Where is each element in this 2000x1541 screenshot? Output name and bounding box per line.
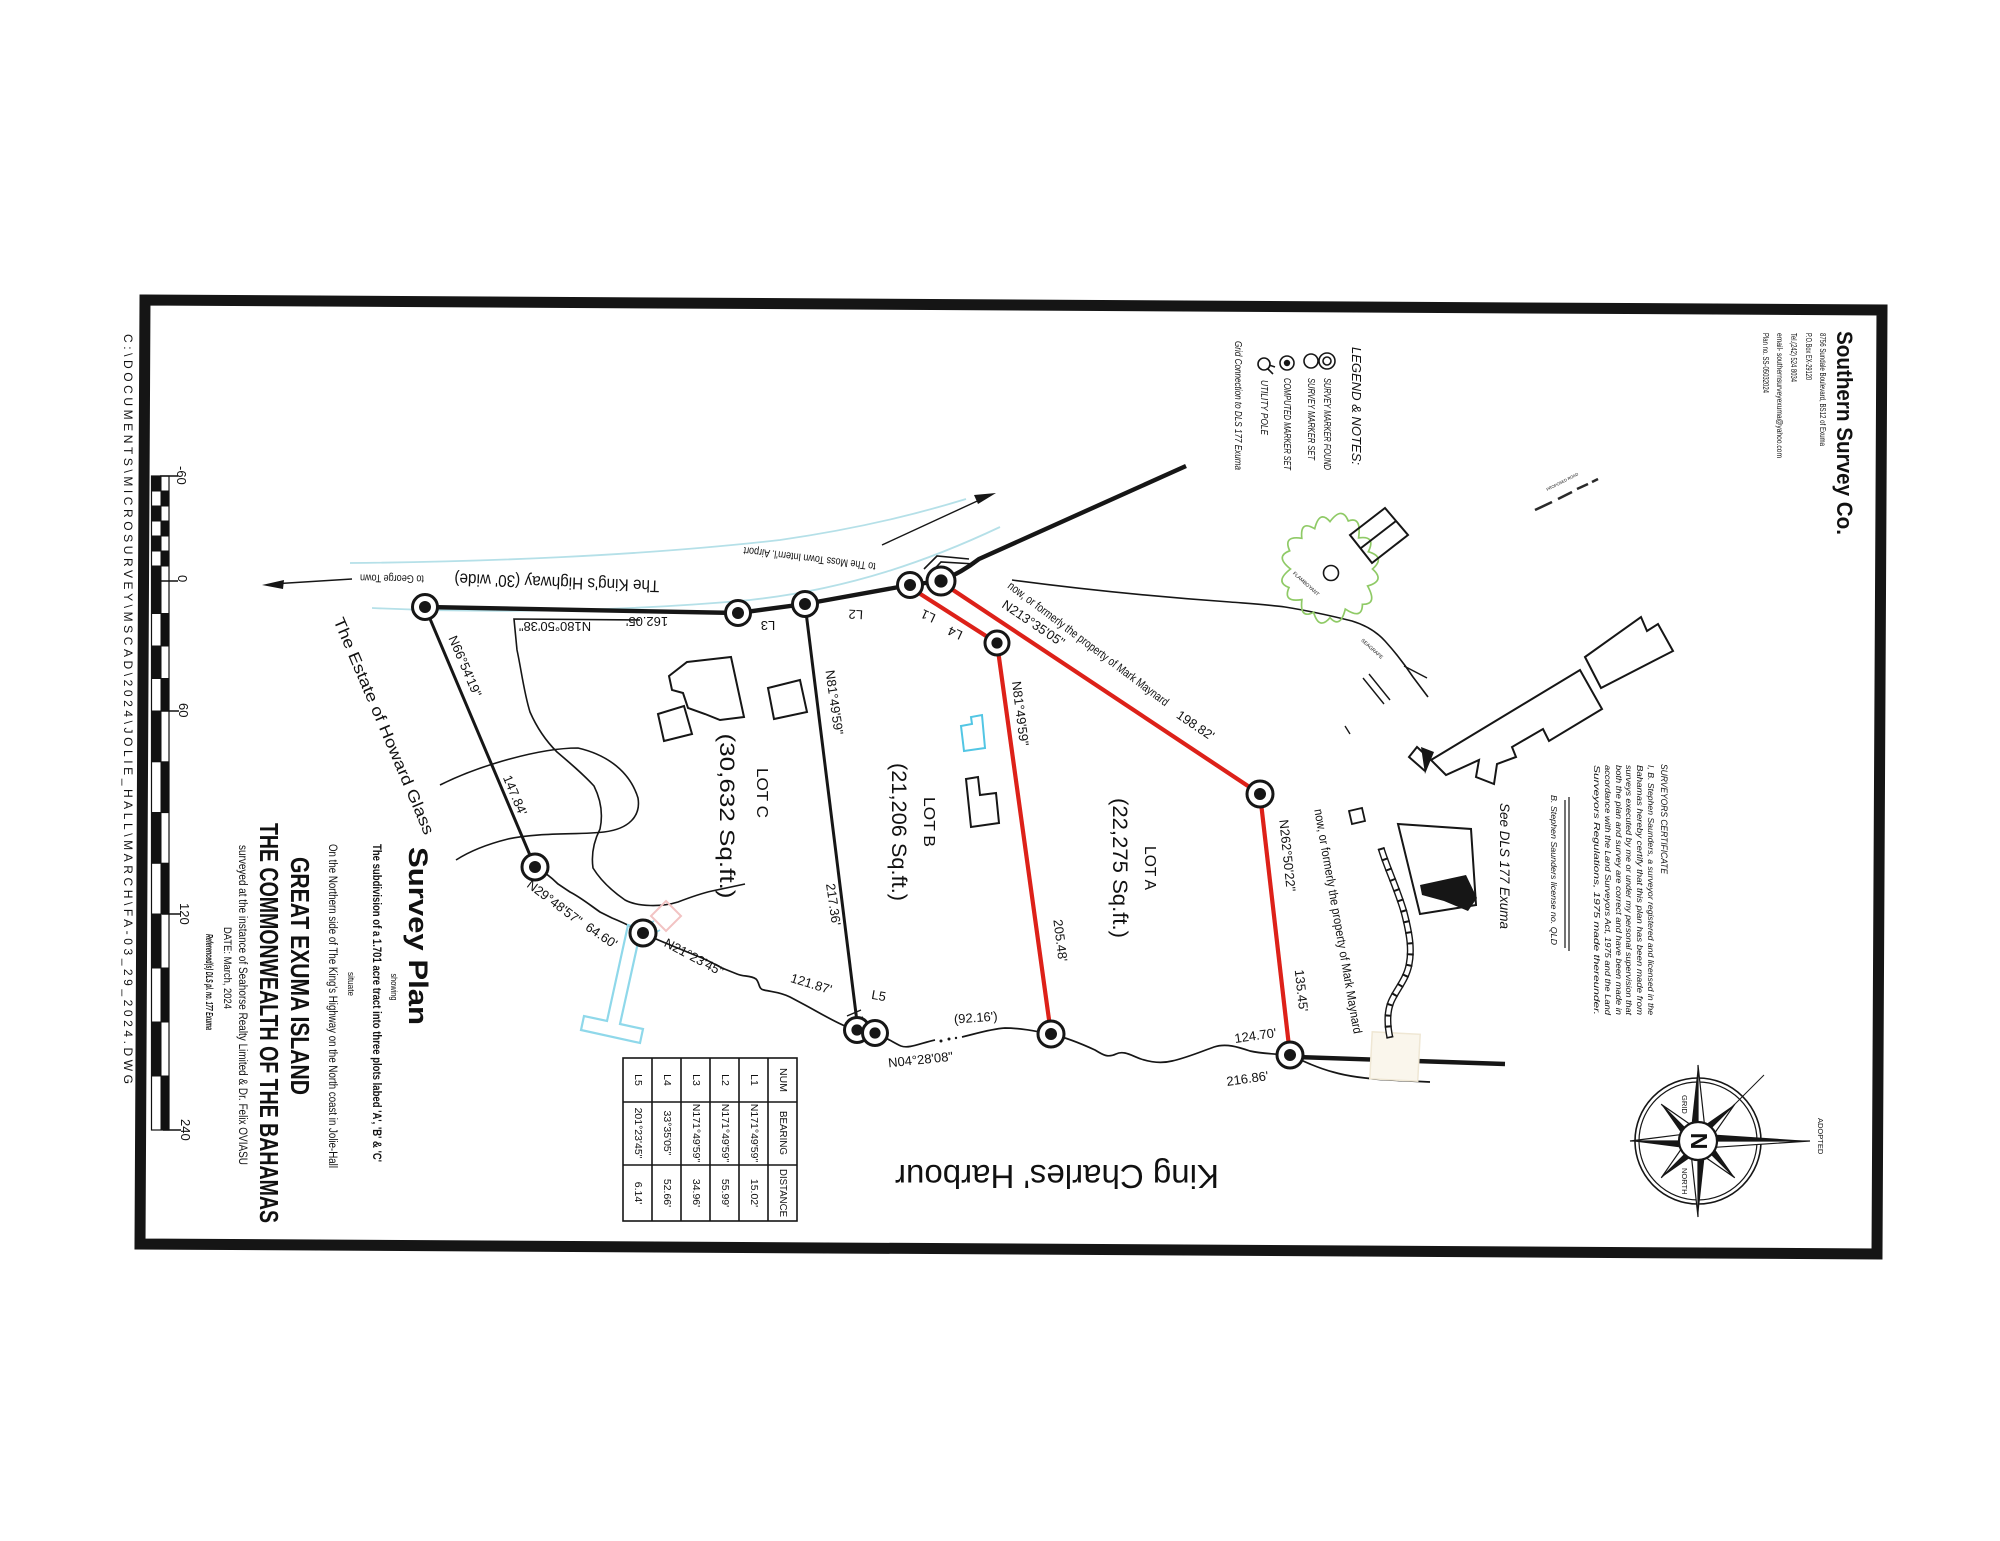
svg-text:L1: L1 <box>918 606 937 626</box>
svg-text:P.O.Box EX-29120: P.O.Box EX-29120 <box>1804 333 1814 380</box>
svg-text:Grid Connection to DLS 177 Ex: Grid Connection to DLS 177 Exuma <box>1232 341 1243 470</box>
svg-text:L1: L1 <box>748 1074 760 1086</box>
svg-text:now, or formerly the property: now, or formerly the property of Mark Ma… <box>1311 808 1364 1035</box>
svg-text:Referenced(s) DLS pl. no. 177: Referenced(s) DLS pl. no. 177 Exuma <box>203 934 214 1030</box>
svg-text:surveyed at the instance of Se: surveyed at the instance of Seahorse Rea… <box>236 845 248 1165</box>
svg-text:The Estate of Howard Glass: The Estate of Howard Glass <box>330 615 437 837</box>
svg-text:NUM: NUM <box>777 1068 789 1092</box>
svg-text:FLAMBOYANT: FLAMBOYANT <box>1291 571 1320 598</box>
svg-text:(22,275 Sq.ft.): (22,275 Sq.ft.) <box>1108 798 1131 938</box>
svg-text:SEAGRAPE: SEAGRAPE <box>1359 638 1384 661</box>
svg-text:N: N <box>1686 1133 1712 1150</box>
svg-text:201°23'45": 201°23'45" <box>632 1108 644 1159</box>
svg-text:LEGEND & NOTES:: LEGEND & NOTES: <box>1349 347 1364 465</box>
svg-text:SURVEY MARKER FOUND: SURVEY MARKER FOUND <box>1321 378 1332 470</box>
svg-text:See DLS 177 Exuma: See DLS 177 Exuma <box>1497 803 1513 929</box>
svg-text:205.48': 205.48' <box>1050 919 1070 963</box>
svg-text:64.60': 64.60' <box>583 919 620 951</box>
svg-text:showing: showing <box>388 974 399 1001</box>
svg-text:N262°50'22": N262°50'22" <box>1276 819 1299 893</box>
svg-text:N81°49'59": N81°49'59" <box>823 669 847 736</box>
svg-text:15.02': 15.02' <box>748 1179 760 1207</box>
svg-text:34.96': 34.96' <box>690 1179 702 1207</box>
svg-text:120: 120 <box>177 903 192 925</box>
svg-text:(30,632 Sq.ft.): (30,632 Sq.ft.) <box>715 734 738 899</box>
svg-text:N04°28'08": N04°28'08" <box>887 1049 954 1071</box>
svg-text:Southern Survey Co.: Southern Survey Co. <box>1832 331 1857 535</box>
svg-text:L3: L3 <box>761 618 775 633</box>
svg-text:60: 60 <box>176 703 191 717</box>
svg-text:121.87': 121.87' <box>789 970 834 997</box>
svg-text:L2: L2 <box>719 1074 731 1086</box>
svg-text:N180°50'38": N180°50'38" <box>518 619 591 634</box>
svg-text:COMPUTED MARKER SET: COMPUTED MARKER SET <box>1281 378 1292 471</box>
svg-text:8756 Sundale Boulevard, BS12 o: 8756 Sundale Boulevard, BS12 of Exuma <box>1818 333 1828 446</box>
svg-text:162.05': 162.05' <box>626 614 668 629</box>
svg-text:DISTANCE: DISTANCE <box>777 1169 789 1217</box>
svg-text:The subdivision of a 1.701 acr: The subdivision of a 1.701 acre tract in… <box>370 844 384 1162</box>
svg-text:C:\DOCUMENTS\MICROSURVEY\MSCAD: C:\DOCUMENTS\MICROSURVEY\MSCAD\2024\JOLI… <box>121 334 135 1084</box>
svg-text:124.70': 124.70' <box>1233 1025 1277 1046</box>
svg-text:UTILITY POLE: UTILITY POLE <box>1258 380 1269 435</box>
svg-text:135.45': 135.45' <box>1292 969 1311 1013</box>
svg-text:PROPOSED ROAD: PROPOSED ROAD <box>1545 471 1579 492</box>
svg-text:Surveyors Regulations, 1975 ma: Surveyors Regulations, 1975 made thereun… <box>1592 765 1601 1015</box>
svg-text:Survey Plan: Survey Plan <box>403 847 433 1025</box>
svg-text:surveys executed by me or unde: surveys executed by me or under my perso… <box>1624 765 1633 1016</box>
svg-text:N29°48'57": N29°48'57" <box>524 877 585 928</box>
svg-text:(92.16'): (92.16') <box>953 1009 998 1027</box>
svg-text:SURVEY MARKER SET: SURVEY MARKER SET <box>1305 378 1316 461</box>
svg-text:L4: L4 <box>661 1074 673 1086</box>
svg-text:King Charles' Harbour: King Charles' Harbour <box>895 1158 1219 1195</box>
svg-text:GREAT EXUMA ISLAND: GREAT EXUMA ISLAND <box>285 857 315 1095</box>
svg-text:LOT B: LOT B <box>920 797 937 847</box>
svg-text:LOT A: LOT A <box>1141 846 1158 890</box>
svg-text:to George Town: to George Town <box>360 571 424 584</box>
svg-text:N171°49'59": N171°49'59" <box>690 1104 702 1163</box>
svg-text:52.66': 52.66' <box>661 1179 673 1207</box>
svg-text:GRID: GRID <box>1680 1095 1689 1114</box>
svg-text:N171°49'59": N171°49'59" <box>719 1104 731 1163</box>
svg-text:L2: L2 <box>848 607 863 623</box>
svg-text:to The Moss Town Intern'l. Air: to The Moss Town Intern'l. Airport <box>743 544 876 572</box>
svg-text:SURVEYORS CERTIFICATE: SURVEYORS CERTIFICATE <box>1659 764 1669 875</box>
svg-text:L4: L4 <box>945 623 964 643</box>
svg-text:situate: situate <box>345 972 356 996</box>
svg-text:LOT C: LOT C <box>753 768 770 818</box>
svg-text:N21°23'45": N21°23'45" <box>662 935 727 979</box>
svg-text:N81°49'59": N81°49'59" <box>1009 680 1032 747</box>
svg-text:I, B. Stephen Saunders, a surv: I, B. Stephen Saunders, a surveyor regis… <box>1646 765 1655 1016</box>
svg-text:L5: L5 <box>632 1074 644 1086</box>
svg-text:THE COMMONWEALTH OF THE BAHAMA: THE COMMONWEALTH OF THE BAHAMAS <box>254 823 284 1223</box>
svg-text:On the Northern side of The Ki: On the Northern side of The King's Highw… <box>326 844 338 1168</box>
svg-text:33°35'05": 33°35'05" <box>661 1111 673 1156</box>
svg-text:email- southernsurveyexuma@yah: email- southernsurveyexuma@yahoo.com <box>1775 333 1785 458</box>
svg-text:Plan no. SS-05032024: Plan no. SS-05032024 <box>1761 333 1771 393</box>
svg-text:BEARING: BEARING <box>777 1111 789 1155</box>
svg-text:L5: L5 <box>870 987 887 1004</box>
svg-text:-60: -60 <box>174 466 189 485</box>
svg-text:Bahamas hereby certify that th: Bahamas hereby certify that this plan ha… <box>1635 765 1644 1015</box>
svg-text:55.99': 55.99' <box>719 1179 731 1207</box>
svg-text:N171°49'59": N171°49'59" <box>748 1104 760 1163</box>
svg-text:B. Stephen Saunders license no: B. Stephen Saunders license no. QLD <box>1549 795 1559 945</box>
svg-text:NORTH: NORTH <box>1680 1168 1689 1195</box>
svg-text:198.82': 198.82' <box>1174 707 1217 743</box>
svg-text:216.86': 216.86' <box>1225 1068 1269 1089</box>
svg-text:L3: L3 <box>690 1074 702 1086</box>
svg-text:Tel.(242) 524 8034: Tel.(242) 524 8034 <box>1789 333 1799 382</box>
svg-text:both the plan and survey are c: both the plan and survey are correct and… <box>1614 765 1623 1016</box>
svg-text:DATE: March, 2024: DATE: March, 2024 <box>221 927 233 1009</box>
svg-text:The King's Highway (30' wide): The King's Highway (30' wide) <box>454 569 660 595</box>
svg-text:(21,206 Sq.ft.): (21,206 Sq.ft.) <box>887 763 910 901</box>
svg-text:now, or formerly the property: now, or formerly the property of Mark Ma… <box>1005 579 1172 709</box>
svg-text:ADOPTED: ADOPTED <box>1816 1118 1825 1155</box>
svg-text:accordance with the Land Surve: accordance with the Land Surveyors Act, … <box>1603 765 1612 1016</box>
svg-text:240: 240 <box>178 1119 193 1141</box>
svg-text:0: 0 <box>175 575 190 582</box>
svg-text:6.14': 6.14' <box>632 1182 644 1204</box>
